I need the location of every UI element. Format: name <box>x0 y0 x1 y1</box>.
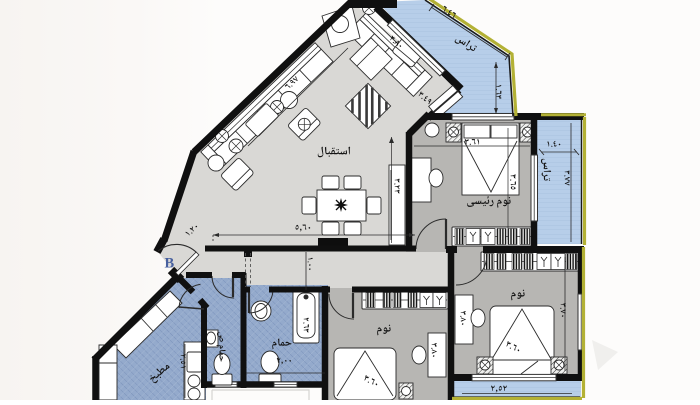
svg-text:B: B <box>165 256 175 272</box>
